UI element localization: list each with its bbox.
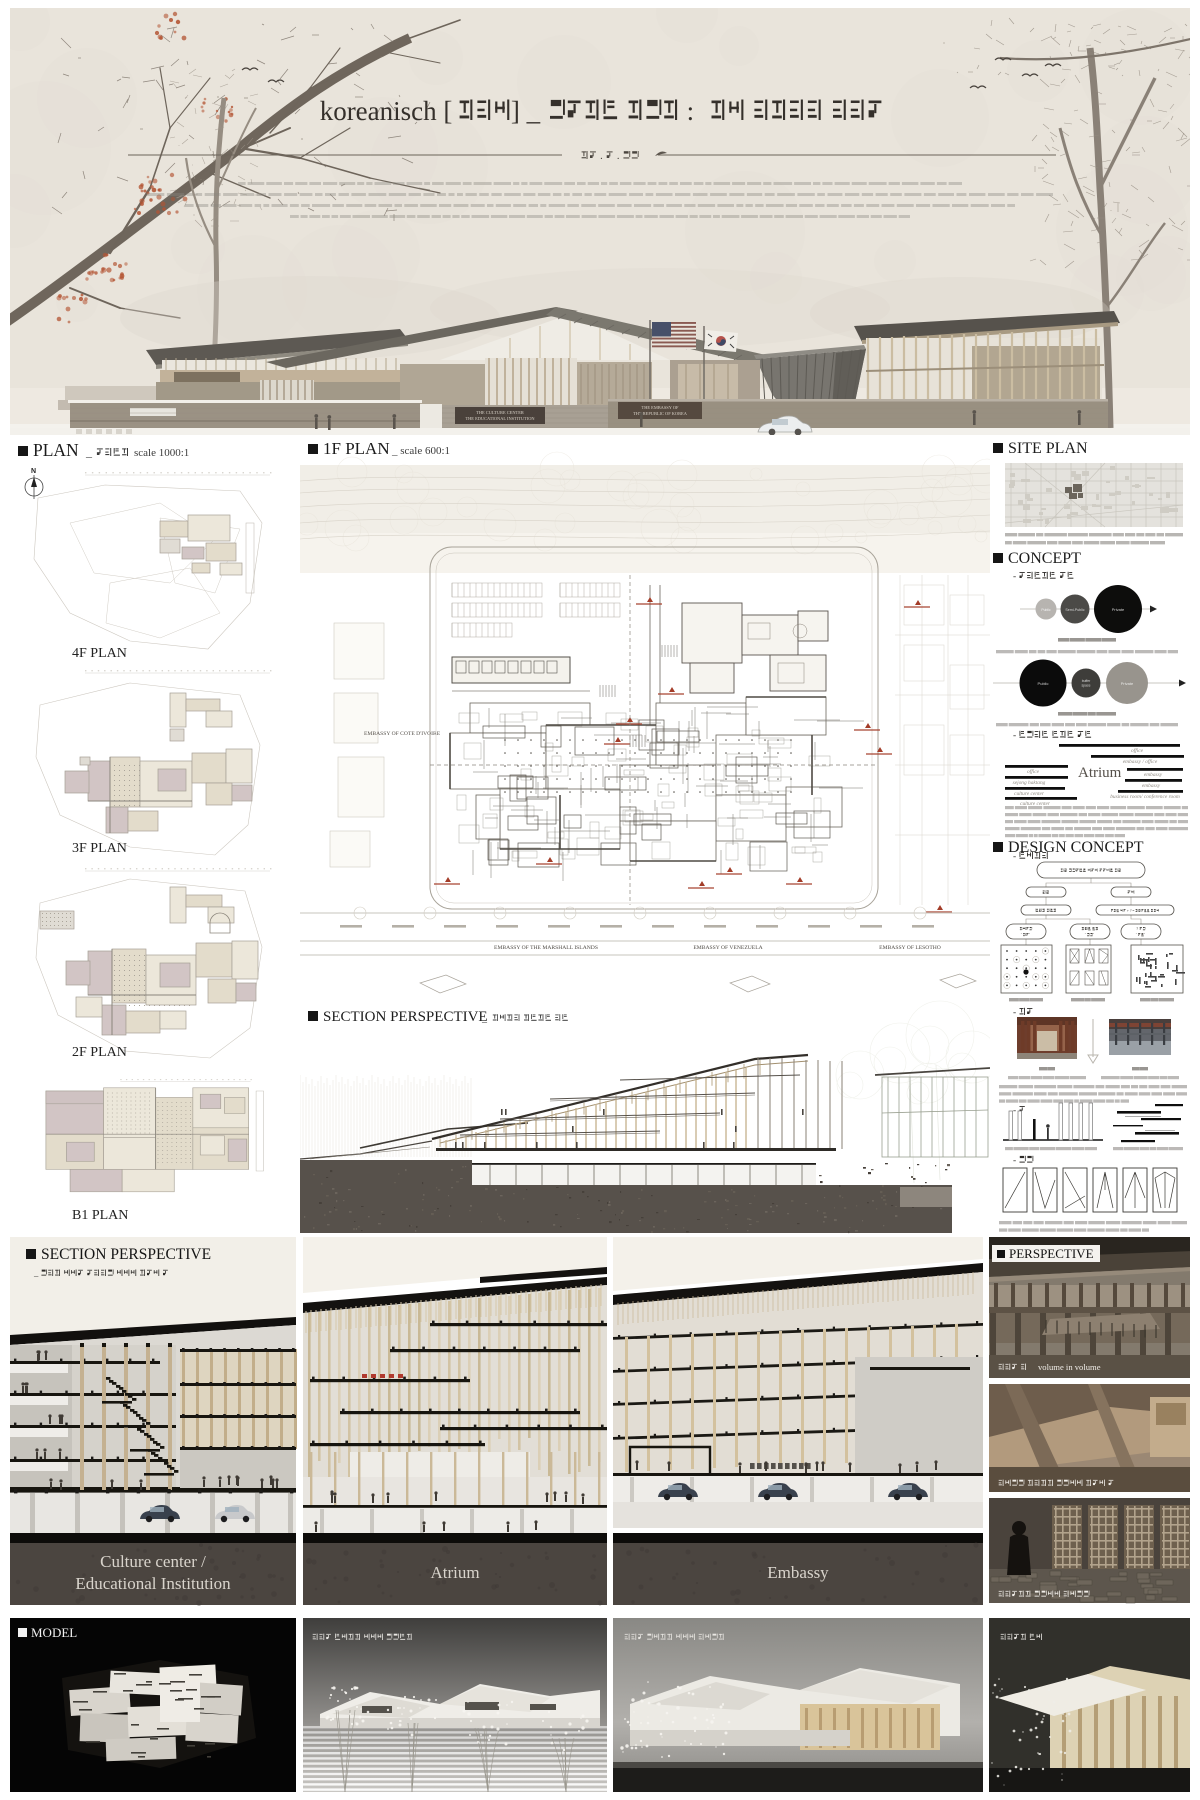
svg-text:sejong haktang: sejong haktang — [1013, 780, 1046, 786]
svg-text:-: - — [1013, 852, 1019, 862]
svg-text:CONCEPT: CONCEPT — [1008, 550, 1081, 567]
svg-text:_: _ — [33, 1268, 40, 1278]
svg-text:Educational Institution: Educational Institution — [75, 1574, 231, 1593]
svg-text:-: - — [1013, 1008, 1019, 1018]
svg-text:THE EMBASSY OF: THE EMBASSY OF — [642, 405, 679, 410]
svg-text:scale 1000:1: scale 1000:1 — [134, 447, 189, 459]
svg-text:N: N — [31, 468, 36, 475]
svg-text:space: space — [1081, 684, 1090, 688]
svg-text:koreanisch [: koreanisch [ — [320, 96, 453, 126]
svg-text:PLAN: PLAN — [33, 440, 79, 460]
svg-text:EMBASSY OF LESOTHO: EMBASSY OF LESOTHO — [879, 945, 941, 951]
svg-text:Private: Private — [1121, 681, 1134, 686]
svg-text:': ' — [1136, 932, 1137, 937]
svg-text:MODEL: MODEL — [31, 1625, 77, 1640]
svg-text:-: - — [1013, 572, 1019, 582]
svg-text:1F PLAN: 1F PLAN — [323, 439, 390, 458]
svg-text:SECTION PERSPECTIVE: SECTION PERSPECTIVE — [41, 1246, 211, 1263]
svg-text:4F PLAN: 4F PLAN — [72, 646, 127, 661]
svg-text:.: . — [614, 151, 622, 162]
svg-text:SITE PLAN: SITE PLAN — [1008, 440, 1088, 457]
svg-text:SECTION PERSPECTIVE: SECTION PERSPECTIVE — [323, 1009, 488, 1025]
svg-text:': ' — [1029, 932, 1030, 937]
svg-text:Public: Public — [1041, 608, 1051, 612]
svg-text:?: ? — [1136, 926, 1139, 931]
svg-text:THE CULTURE CENTER: THE CULTURE CENTER — [476, 410, 524, 415]
svg-text:_ scale 600:1: _ scale 600:1 — [391, 445, 450, 457]
svg-text:culture center: culture center — [1014, 791, 1045, 797]
svg-text::: : — [680, 96, 708, 126]
svg-text:embassy: embassy — [1144, 772, 1163, 778]
svg-text:office: office — [1027, 768, 1040, 775]
svg-text:EMBASSY OF VENEZUELA: EMBASSY OF VENEZUELA — [693, 945, 762, 951]
svg-text:': ' — [1144, 932, 1145, 937]
svg-text:EMBASSY OF THE MARSHALL ISLAND: EMBASSY OF THE MARSHALL ISLANDS — [494, 945, 598, 951]
svg-text:_: _ — [481, 1013, 488, 1024]
svg-text:_: _ — [85, 445, 93, 459]
svg-text:Public: Public — [1038, 681, 1049, 686]
svg-text:embassy / office: embassy / office — [1123, 758, 1158, 765]
svg-text:Semi-Public: Semi-Public — [1065, 608, 1084, 612]
svg-text:buffer: buffer — [1082, 679, 1091, 683]
svg-text:business room/ conference room: business room/ conference room — [1110, 793, 1180, 800]
svg-text:': ' — [1021, 932, 1022, 937]
svg-text:2F PLAN: 2F PLAN — [72, 1045, 127, 1060]
svg-text:Culture center /: Culture center / — [100, 1552, 206, 1571]
svg-text:volume in volume: volume in volume — [1038, 1362, 1101, 1372]
svg-text:': ' — [1085, 932, 1086, 937]
svg-text:-: - — [1013, 731, 1019, 741]
svg-text:Embassy: Embassy — [767, 1563, 829, 1582]
svg-text:THE EDUCATIONAL INSTITUTION: THE EDUCATIONAL INSTITUTION — [465, 416, 535, 421]
svg-text:PERSPECTIVE: PERSPECTIVE — [1009, 1246, 1094, 1261]
svg-text:Atrium: Atrium — [1078, 765, 1122, 781]
svg-text:embassy: embassy — [1142, 783, 1161, 789]
svg-text:B1 PLAN: B1 PLAN — [72, 1208, 128, 1223]
svg-text:3F PLAN: 3F PLAN — [72, 841, 127, 856]
svg-text:DESIGN CONCEPT: DESIGN CONCEPT — [1008, 839, 1144, 856]
svg-text:+ ? =: + ? = — [1126, 909, 1135, 913]
svg-text:] _: ] _ — [511, 96, 547, 126]
svg-text:': ' — [1093, 932, 1094, 937]
svg-text:office: office — [1131, 747, 1144, 754]
svg-text:-: - — [1013, 1156, 1019, 1166]
svg-text:.: . — [598, 151, 606, 162]
svg-text:Atrium: Atrium — [430, 1563, 479, 1582]
svg-text:Private: Private — [1112, 607, 1125, 612]
svg-text:EMBASSY OF COTE D'IVOIRE: EMBASSY OF COTE D'IVOIRE — [364, 731, 441, 737]
